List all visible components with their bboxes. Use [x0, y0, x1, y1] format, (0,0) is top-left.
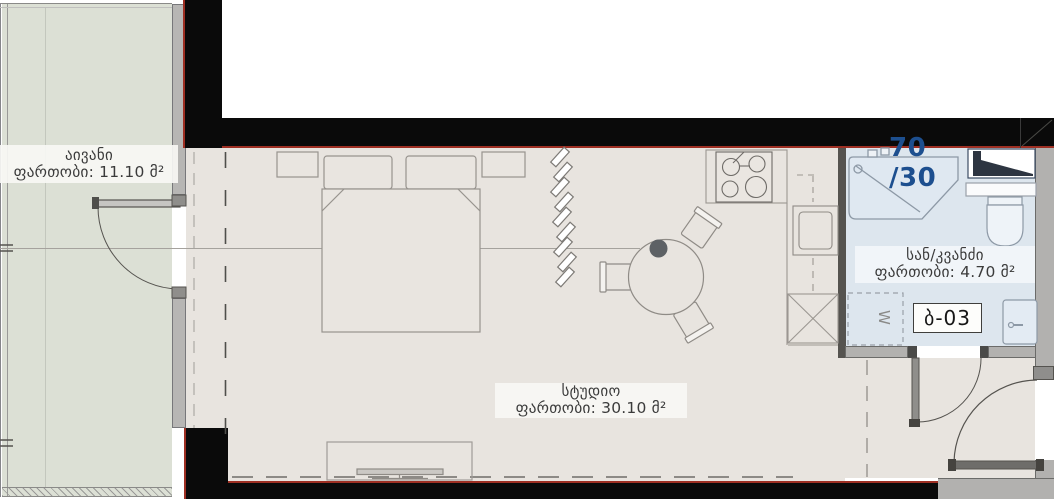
door-arc [954, 380, 1037, 462]
door-leaf [97, 200, 180, 207]
bathroom-cabinet [1003, 300, 1037, 344]
tv [357, 469, 443, 475]
washing-machine-space: W [848, 293, 903, 345]
pillow-left [324, 156, 392, 189]
room-name: სან/კვანძი [906, 247, 984, 264]
entrance-door [948, 380, 1044, 471]
bathroom-door [909, 356, 981, 427]
washbasin [966, 149, 1036, 196]
bed-body [322, 189, 480, 332]
room-area: ფართობი: 11.10 მ² [14, 164, 165, 181]
balcony-door [92, 195, 186, 298]
wall-corner-detail [1022, 120, 1052, 146]
room-area: ფართობი: 30.10 მ² [516, 400, 667, 417]
balcony-label: აივანი ფართობი: 11.10 მ² [0, 145, 178, 183]
kitchen [706, 150, 838, 345]
kitchen-sink [793, 206, 838, 255]
door-leaf [952, 461, 1040, 469]
area-ratio-label: 70 /30 [889, 148, 973, 178]
wall-cap [172, 287, 186, 298]
door-leaf [912, 358, 919, 421]
chair [600, 262, 632, 292]
floor-plan: W აივანი ფ [0, 0, 1054, 499]
datum-ticks [0, 245, 13, 446]
fridge-space [788, 294, 838, 343]
table-decor [650, 240, 668, 258]
wall-cap [172, 195, 186, 206]
pillow-right [406, 156, 476, 189]
bathroom-label: სან/კვანძი ფართობი: 4.70 მ² [855, 246, 1035, 283]
dining-table-set [600, 206, 722, 343]
washing-machine-symbol: W [875, 310, 893, 325]
stove [716, 152, 772, 202]
unit-code-badge: ბ-03 [913, 303, 982, 333]
nightstand-right [482, 152, 525, 177]
partition-hatch [551, 147, 577, 287]
unit-code: ბ-03 [924, 306, 971, 330]
room-name: სტუდიო [561, 383, 620, 400]
chair [679, 206, 722, 249]
studio-label: სტუდიო ფართობი: 30.10 მ² [495, 383, 687, 418]
room-name: აივანი [65, 147, 113, 164]
tv-stand [327, 442, 472, 480]
toilet [987, 197, 1023, 246]
bed [277, 152, 525, 332]
nightstand-left [277, 152, 318, 177]
room-area: ფართობი: 4.70 მ² [875, 264, 1016, 281]
bath-shelf [966, 183, 1036, 196]
